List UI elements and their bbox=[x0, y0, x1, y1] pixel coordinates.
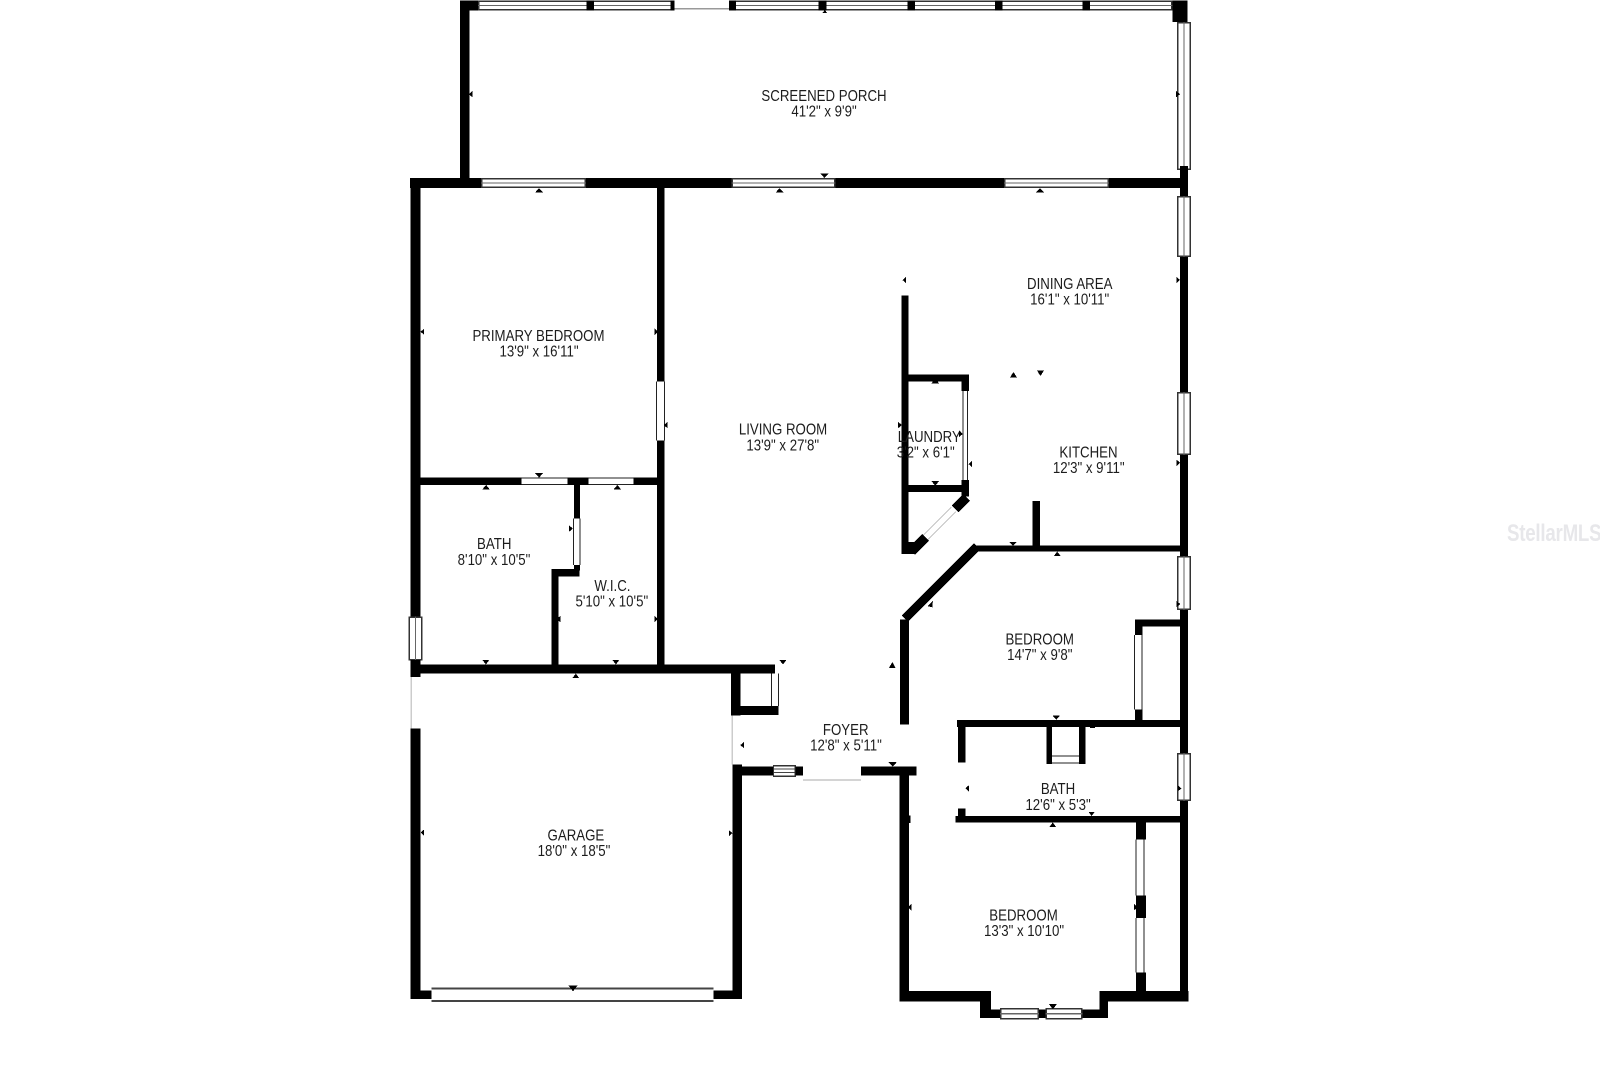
svg-text:GARAGE: GARAGE bbox=[548, 828, 605, 845]
svg-text:16'1" x 10'11": 16'1" x 10'11" bbox=[1030, 292, 1109, 309]
svg-text:12'8" x 5'11": 12'8" x 5'11" bbox=[810, 738, 882, 755]
svg-text:LIVING ROOM: LIVING ROOM bbox=[739, 422, 827, 439]
svg-text:BEDROOM: BEDROOM bbox=[1005, 631, 1073, 648]
svg-text:BATH: BATH bbox=[1041, 781, 1075, 798]
svg-text:12'6" x 5'3": 12'6" x 5'3" bbox=[1025, 797, 1090, 814]
svg-text:StellarMLS: StellarMLS bbox=[1507, 520, 1600, 547]
svg-text:PRIMARY BEDROOM: PRIMARY BEDROOM bbox=[472, 328, 604, 345]
svg-text:KITCHEN: KITCHEN bbox=[1059, 444, 1117, 461]
svg-text:8'10" x 10'5": 8'10" x 10'5" bbox=[458, 552, 531, 569]
svg-text:W.I.C.: W.I.C. bbox=[594, 578, 630, 595]
svg-text:13'3" x 10'10": 13'3" x 10'10" bbox=[984, 923, 1064, 940]
svg-text:3'2" x 6'1": 3'2" x 6'1" bbox=[897, 445, 955, 462]
svg-text:SCREENED PORCH: SCREENED PORCH bbox=[761, 88, 886, 105]
svg-text:FOYER: FOYER bbox=[823, 722, 869, 739]
svg-text:BEDROOM: BEDROOM bbox=[989, 907, 1057, 924]
svg-text:BATH: BATH bbox=[477, 536, 511, 553]
svg-text:13'9" x 27'8": 13'9" x 27'8" bbox=[746, 437, 819, 454]
svg-text:13'9" x 16'11": 13'9" x 16'11" bbox=[499, 344, 578, 361]
svg-text:LAUNDRY: LAUNDRY bbox=[898, 429, 961, 446]
svg-text:18'0" x 18'5": 18'0" x 18'5" bbox=[538, 843, 611, 860]
svg-text:5'10" x 10'5": 5'10" x 10'5" bbox=[575, 594, 648, 611]
svg-text:12'3" x 9'11": 12'3" x 9'11" bbox=[1053, 460, 1125, 477]
svg-text:DINING AREA: DINING AREA bbox=[1027, 276, 1113, 293]
svg-text:41'2" x 9'9": 41'2" x 9'9" bbox=[791, 104, 856, 121]
svg-text:14'7" x 9'8": 14'7" x 9'8" bbox=[1007, 647, 1072, 664]
